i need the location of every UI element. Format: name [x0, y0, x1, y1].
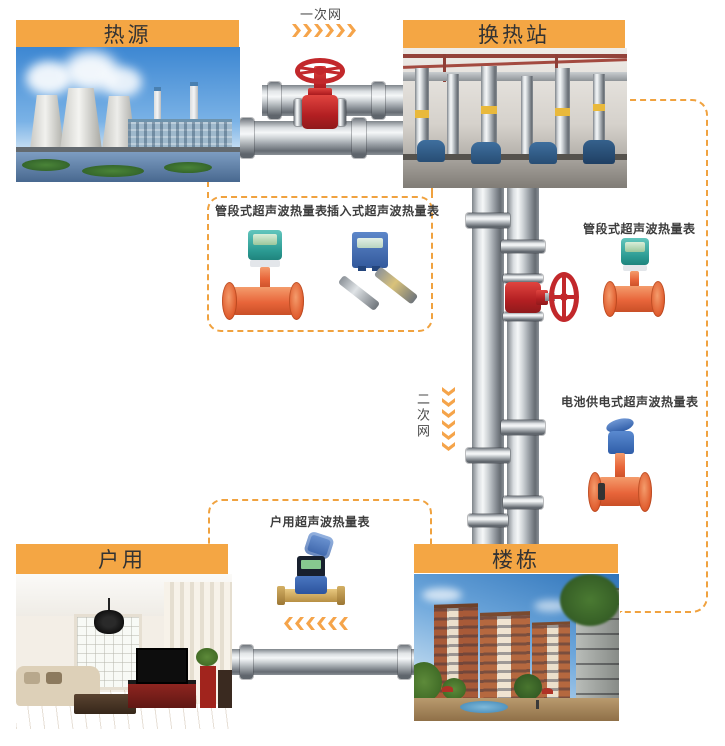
household-branch-pipe [232, 649, 416, 675]
chevron-icon [336, 24, 345, 37]
chevron-icon [328, 617, 337, 630]
household-flow-chevrons-left-icon [284, 617, 348, 630]
cable-gland [358, 266, 366, 271]
heat-source-photo [16, 47, 240, 182]
meter-label-pipe-section-a: 管段式超声波热量表 [215, 202, 328, 219]
pipe-flange [398, 645, 411, 679]
heating-network-diagram: 一次网 二次网 管段式超声波热量表 插入式超声波热量表 管段式超声波热量表 电池… [0, 0, 725, 746]
meter-display [357, 238, 383, 248]
chevron-icon [317, 617, 326, 630]
umbrella [442, 686, 453, 692]
panel-household-title: 户用 [98, 544, 146, 574]
sofa-pillow [46, 672, 62, 684]
primary-network-label: 一次网 [288, 4, 354, 23]
household-meter-pipe-end [337, 586, 345, 605]
panel-exchange-station-header: 换热站 [403, 20, 625, 48]
meter-label-battery: 电池供电式超声波热量表 [561, 393, 699, 410]
pipe-flange [240, 118, 254, 158]
chevron-icon [442, 398, 455, 407]
chevron-icon [314, 24, 323, 37]
meter-flange [603, 281, 617, 317]
pipe-flange [352, 118, 366, 158]
valve-flange [337, 99, 346, 126]
pipe-flange [240, 645, 253, 679]
panel-heat-source-header: 热源 [16, 20, 239, 47]
red-side-table [200, 666, 216, 708]
ceiling-pipe [403, 54, 627, 58]
meter-collar [250, 260, 280, 267]
battery-meter-cap [608, 431, 634, 454]
chevron-icon [442, 409, 455, 418]
pump [583, 140, 615, 164]
panel-building-title: 楼栋 [492, 544, 540, 574]
secondary-network-label: 二次网 [413, 392, 432, 448]
dashed-path-station-to-building [620, 99, 708, 613]
meter-label-household: 户用超声波热量表 [270, 513, 370, 530]
pipe-flange [372, 82, 385, 119]
chevron-icon [292, 24, 301, 37]
dashed-connector-right [431, 188, 433, 198]
meter-flange [289, 282, 304, 320]
chevron-icon [347, 24, 356, 37]
exchange-station-photo [403, 48, 627, 188]
secondary-flow-chevrons-down-icon [442, 387, 455, 451]
chevron-icon [303, 24, 312, 37]
primary-flow-chevrons-right-icon [292, 24, 356, 37]
steam-plume [102, 67, 142, 97]
plant [196, 648, 218, 666]
meter-flange [651, 281, 665, 317]
chevron-icon [306, 617, 315, 630]
meter-neck [630, 271, 639, 287]
coffee-table [74, 694, 136, 714]
islet [164, 162, 212, 173]
chevron-icon [442, 387, 455, 396]
station-pipe [521, 76, 533, 154]
side-table [218, 670, 232, 708]
tv-screen [136, 648, 188, 684]
meter-display [253, 234, 277, 245]
meter-display [625, 242, 645, 252]
pool [460, 701, 508, 713]
plaza [414, 698, 619, 721]
tree [514, 674, 542, 700]
meter-neck [615, 453, 625, 479]
pipe-collar [501, 240, 545, 253]
gate-valve-body [302, 95, 338, 129]
pipe-yellow-band [555, 108, 570, 116]
person [536, 700, 539, 709]
umbrella [542, 688, 553, 694]
sofa-pillow [24, 672, 40, 684]
pipe-collar [466, 448, 510, 463]
chevron-icon [442, 420, 455, 429]
panel-exchange-station-title: 换热站 [478, 19, 550, 49]
tree [560, 574, 619, 626]
chevron-icon [442, 431, 455, 440]
pipe-collar [501, 420, 545, 435]
dashed-connector-left [207, 181, 209, 198]
meter-flange [638, 472, 652, 512]
household-meter-pipe-end [277, 586, 285, 605]
panel-heat-source-title: 热源 [104, 19, 152, 49]
chevron-icon [284, 617, 293, 630]
pump [471, 142, 501, 164]
household-photo [16, 574, 232, 729]
pipe-collar [503, 496, 543, 509]
panel-building-header: 楼栋 [414, 544, 618, 573]
chevron-icon [295, 617, 304, 630]
wheel-hub [560, 293, 568, 301]
islet [82, 165, 144, 177]
chevron-icon [325, 24, 334, 37]
household-meter-body [295, 576, 327, 594]
meter-label-insertion: 插入式超声波热量表 [327, 202, 440, 219]
pump [529, 142, 557, 164]
panel-household-header: 户用 [16, 544, 228, 574]
pipe-yellow-band [415, 110, 429, 118]
floor [403, 160, 627, 188]
meter-flange [222, 282, 237, 320]
chevron-icon [442, 442, 455, 451]
meter-body [230, 287, 296, 315]
chevron-icon [339, 617, 348, 630]
pipe-flange [268, 82, 281, 119]
meter-lcd [301, 560, 321, 569]
valve-flange [503, 312, 543, 321]
chandelier [94, 610, 124, 634]
station-pipe [447, 74, 459, 154]
tv-cabinet [128, 680, 196, 708]
pipe-collar [466, 213, 510, 228]
wheel-hub [315, 66, 325, 75]
cloud [422, 588, 462, 602]
meter-sensor-block [598, 483, 605, 500]
pipe-collar [468, 514, 508, 527]
pump [417, 140, 445, 162]
pipe-yellow-band [481, 106, 497, 114]
building-photo [414, 574, 619, 721]
pipe-yellow-band [593, 104, 605, 111]
islet [22, 159, 70, 171]
secondary-pipe-left [472, 188, 504, 558]
meter-neck [260, 267, 270, 289]
meter-label-pipe-section-b: 管段式超声波热量表 [583, 220, 696, 237]
